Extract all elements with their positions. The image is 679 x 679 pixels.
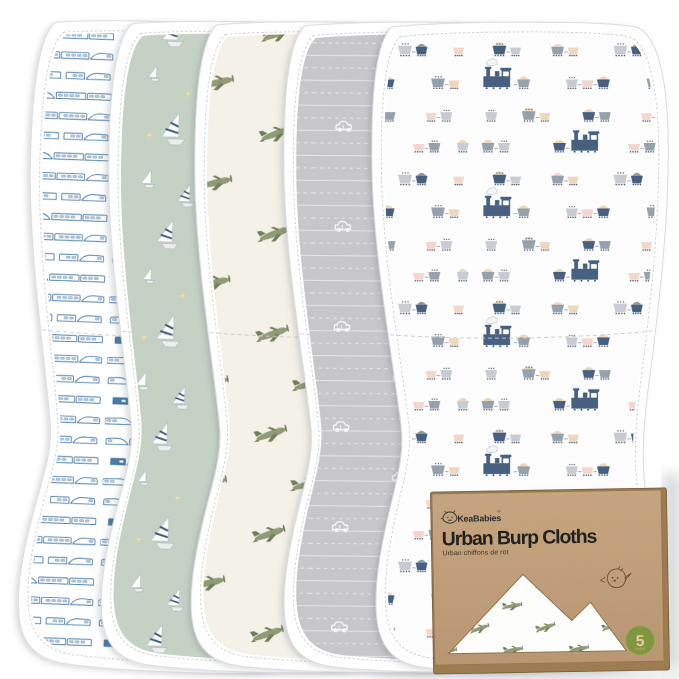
svg-text:PACK: PACK (635, 647, 645, 651)
svg-text:Urban chiffons de rot: Urban chiffons de rot (442, 549, 508, 557)
svg-text:KeaBabies: KeaBabies (457, 513, 501, 524)
svg-text:®: ® (498, 509, 501, 513)
svg-text:Urban Burp Cloths: Urban Burp Cloths (442, 526, 597, 551)
